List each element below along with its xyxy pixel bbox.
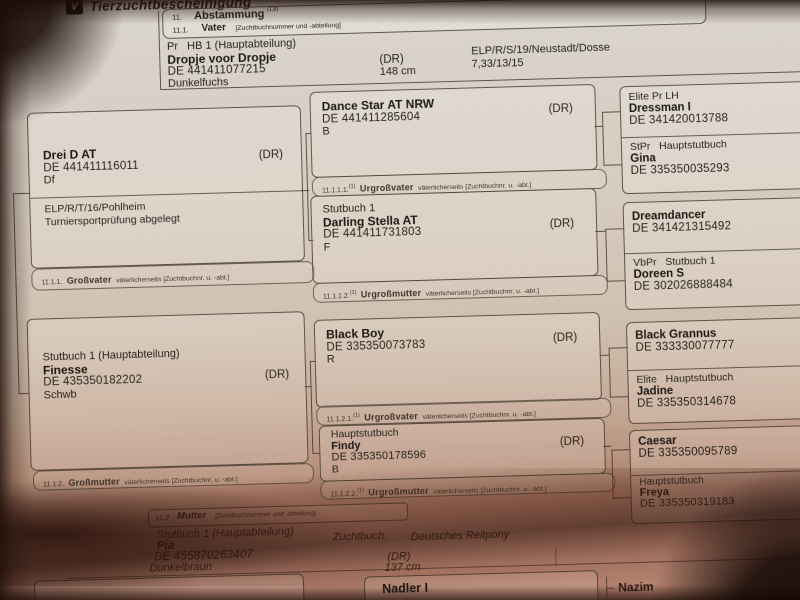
- pedigree-box-gg-pair-3: Black Grannus DE 333330077777 Elite Haup…: [626, 317, 800, 425]
- breed-code: (DR): [550, 218, 575, 231]
- section-number: 11.: [172, 12, 182, 21]
- horse-name: Nadler I: [382, 577, 597, 595]
- pedigree-box-gg-pair-2: Dreamdancer DE 341421315492 VbPr Stutbuc…: [622, 197, 800, 311]
- mutter-label: Mutter: [177, 510, 206, 522]
- vater-scores: 7,33/13/15: [471, 57, 523, 70]
- mutter-number: 11.2: [155, 513, 169, 522]
- vater-number: 11.1.: [172, 25, 188, 34]
- section-footnote: (1,8): [267, 7, 278, 13]
- pedigree-box-grossvater: Drei D AT DE 441411116011 Df (DR) ELP/R/…: [27, 105, 305, 269]
- pedigree-box-urgrossvater-2: Black Boy DE 335350073783 R (DR): [314, 312, 602, 408]
- vater-label: Vater: [201, 22, 226, 34]
- zuchtbuch-label: Zuchtbuch:: [333, 530, 388, 544]
- document-page: V Tierzuchtbescheinigung 11. Abstammung …: [0, 0, 800, 600]
- vater-height: 148 cm: [380, 65, 416, 78]
- pedigree-box-grossmutter: Stutbuch 1 (Hauptabteilung) Finesse DE 4…: [27, 311, 309, 471]
- mutter-note: [Zuchtbuchnummer und -abteilung]: [215, 510, 316, 520]
- pedigree-box-gg-pair-1: Elite Pr LH Dressman I DE 341420013788 S…: [619, 81, 800, 195]
- pedigree-box-urgrossvater-1: Dance Star AT NRW DE 441411285604 B (DR): [309, 84, 597, 178]
- vater-breed: (DR): [379, 53, 404, 66]
- pedigree-box-urgrossmutter-2: Hauptstutbuch Findy DE 335350178596 B (D…: [319, 418, 606, 482]
- pedigree-box-urgrossmutter-1: Stutbuch 1 Darling Stella AT DE 44141173…: [310, 188, 598, 284]
- photographed-pedigree-certificate: V Tierzuchtbescheinigung 11. Abstammung …: [0, 0, 800, 600]
- breed-code: (DR): [553, 332, 578, 345]
- breed-code: (DR): [259, 149, 284, 162]
- breed-code: (DR): [265, 369, 290, 382]
- vater-note: [Zuchtbuchnummer und -abteilung]: [235, 22, 341, 32]
- mutter-color: Dunkelbraun: [149, 561, 212, 575]
- breed-code: (DR): [548, 103, 573, 116]
- horse-name-nazim: Nazim: [618, 580, 654, 595]
- breed-code: (DR): [560, 435, 585, 448]
- section-title-abstammung: Abstammung: [194, 8, 265, 22]
- pedigree-box-gg-pair-4: Caesar DE 335350095789 Hauptstutbuch Fre…: [629, 425, 800, 525]
- form-section-v-badge: V: [66, 0, 83, 15]
